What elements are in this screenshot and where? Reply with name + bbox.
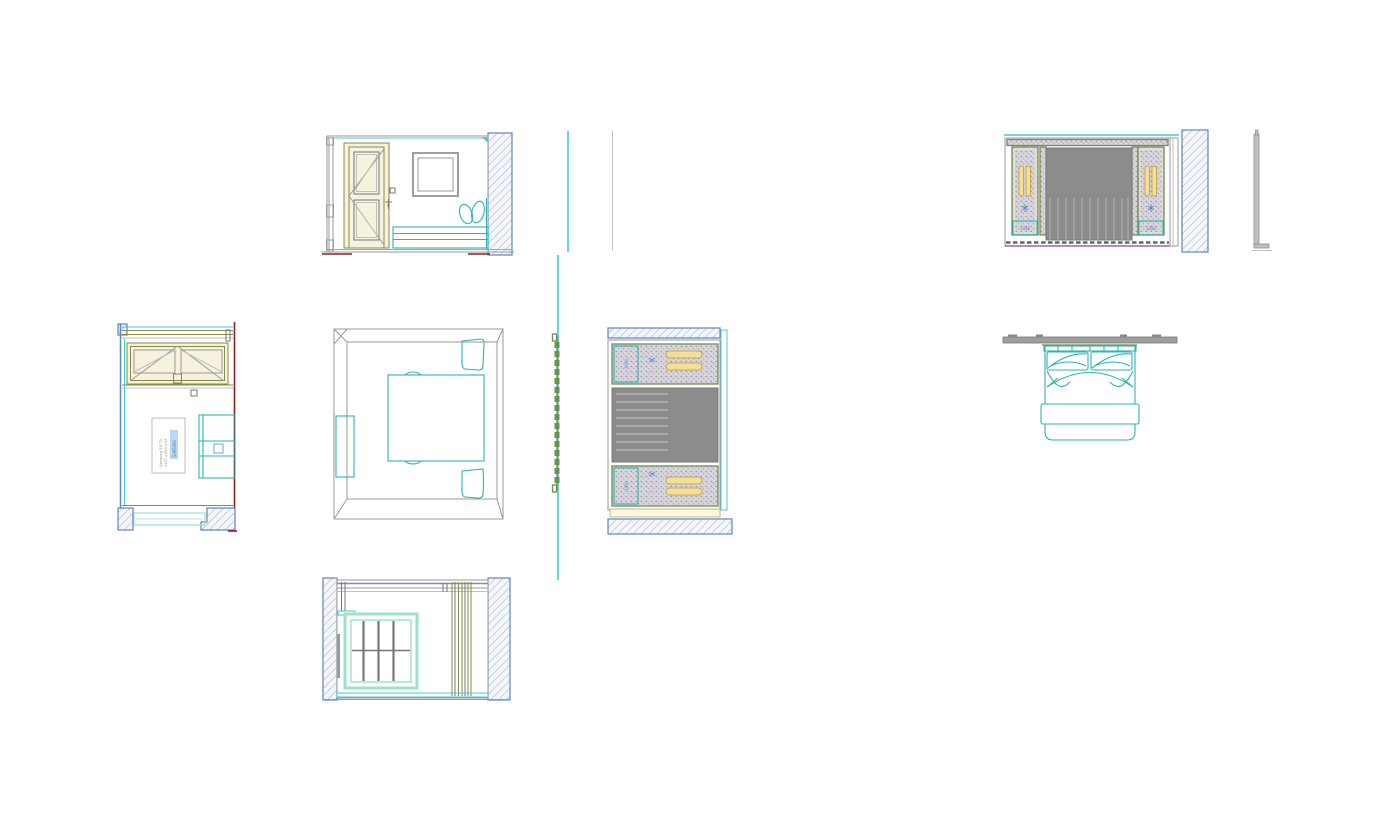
window-transom[interactable]	[122, 343, 233, 388]
wall-section-hatch	[488, 133, 512, 255]
panel-left[interactable]: 1350	[1012, 147, 1038, 235]
door[interactable]	[344, 143, 392, 248]
floor-build-up	[118, 506, 237, 532]
ceiling-strip	[721, 330, 727, 510]
panel-divider	[1132, 147, 1138, 235]
light-switch[interactable]	[191, 390, 197, 396]
elevation-headboard-rotated[interactable]: 1350 1350	[608, 328, 732, 534]
wall-light-icon[interactable]	[1026, 166, 1031, 196]
pillow-plan	[1091, 352, 1132, 370]
wall-outer	[334, 329, 503, 519]
wall-pier	[338, 634, 341, 678]
floor-section-hatch	[608, 519, 732, 534]
elevation-window-wall-front[interactable]	[323, 578, 510, 700]
dim-label: 1350	[624, 359, 629, 369]
dim-label: 1350	[624, 481, 629, 491]
wall-section-hatch	[488, 578, 510, 700]
tv-note-line2: 1127 x 650 x 45	[164, 438, 168, 467]
bedside-unit-side[interactable]	[199, 415, 235, 478]
panel-divider	[1040, 147, 1046, 235]
dim-label: 1350	[1146, 226, 1156, 231]
wall-light-icon[interactable]	[1152, 166, 1157, 196]
wall-light-icon[interactable]	[666, 363, 702, 370]
floor-plan-room[interactable]	[334, 329, 503, 519]
upholstered-headboard[interactable]	[1046, 148, 1132, 240]
elevation-headboard-wall[interactable]: 1350 1350	[1004, 130, 1208, 252]
dim-label: 1350	[1020, 226, 1030, 231]
tv-annotation[interactable]: Samsung 50' TV 1127 x 650 x 45 SAMSUNG	[152, 418, 185, 473]
drawing-canvas[interactable]: 1350 1350	[0, 0, 1389, 828]
duvet-arc	[1047, 373, 1133, 388]
elevation-window-wall-side[interactable]: Samsung 50' TV 1127 x 650 x 45 SAMSUNG	[118, 322, 237, 531]
bed-foot	[1045, 424, 1135, 440]
bed-plan-detail[interactable]	[1041, 346, 1139, 440]
headboard-wall-plan	[1003, 335, 1177, 346]
headboard-panel-edge-profile[interactable]	[553, 334, 558, 492]
cornice-band	[1007, 140, 1168, 146]
wall-return-trim	[1170, 138, 1178, 246]
elevation-door-wall[interactable]	[321, 133, 514, 255]
panel-right[interactable]: 1350	[1138, 147, 1164, 235]
drawer-handle	[214, 444, 223, 453]
bed-runner	[1041, 404, 1139, 424]
wall-light-icon[interactable]	[1019, 166, 1024, 196]
wall-light-icon[interactable]	[666, 488, 702, 495]
wall-section-hatch	[323, 578, 337, 700]
panel-band-bottom[interactable]: 1350	[612, 466, 718, 506]
wall-section-hatch	[1182, 130, 1208, 252]
wall-panel-side-profile[interactable]	[1252, 130, 1272, 251]
pillow-plan	[1047, 352, 1088, 370]
wall-light-icon[interactable]	[1145, 166, 1150, 196]
wall-section-hatch	[608, 328, 720, 338]
wall-section-hatch	[118, 324, 127, 335]
wall-light-icon[interactable]	[666, 477, 702, 484]
plan-bed-detail[interactable]	[1003, 335, 1177, 441]
panel-band-top[interactable]: 1350	[612, 344, 718, 384]
skirting	[610, 509, 720, 517]
tv-note-line1: Samsung 50' TV	[159, 438, 163, 467]
tv-note-highlight: SAMSUNG	[172, 440, 177, 457]
cad-model-space[interactable]: 1350 1350	[0, 0, 1389, 828]
picture-frame[interactable]	[413, 153, 458, 196]
ceiling-cornice	[120, 327, 233, 341]
upholstered-headboard[interactable]	[612, 388, 718, 462]
wall-light-icon[interactable]	[666, 351, 702, 358]
